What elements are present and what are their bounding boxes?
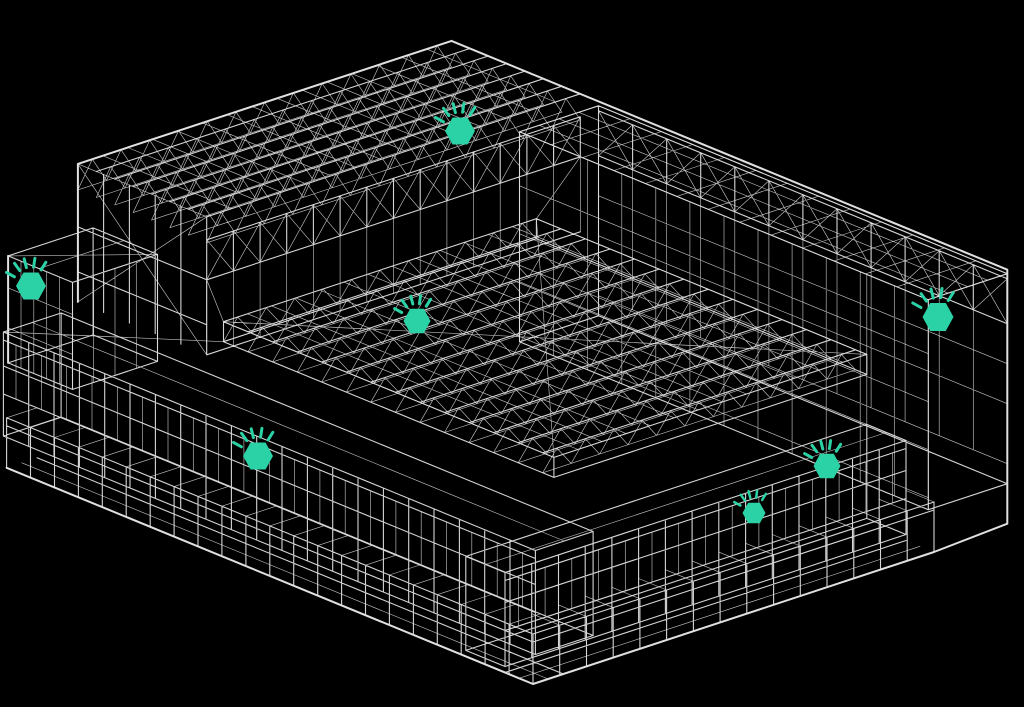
model-viewport [0, 0, 1024, 707]
building-wireframe-svg [0, 0, 1024, 707]
